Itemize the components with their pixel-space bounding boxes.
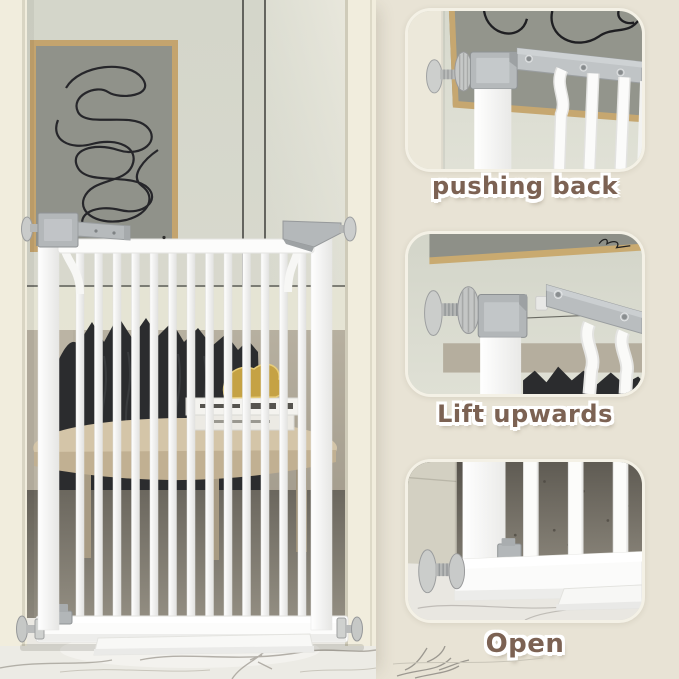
gate-post (480, 337, 521, 394)
panel2-couch (443, 343, 642, 372)
couch-back-strip (27, 287, 345, 332)
latch-clip (536, 296, 548, 310)
floor-ramp-strip (94, 634, 314, 655)
panel-label-lift-upwards: Lift upwards (405, 401, 645, 427)
wall-speck (162, 236, 165, 239)
panel1-art (408, 11, 642, 169)
right-wall-trim (345, 0, 376, 650)
detail-panel-pushing-back (405, 8, 645, 172)
gate-top-rail (58, 239, 314, 253)
marble-branch-veins (393, 646, 543, 679)
gate-post (474, 89, 511, 169)
left-door-frame (0, 0, 34, 650)
detail-panel-open (405, 459, 645, 623)
wall-mount-disc (427, 60, 443, 93)
panel3-art (408, 462, 642, 620)
room-scene-art (0, 0, 376, 679)
room-scene (0, 0, 376, 679)
product-image-root: pushing back (0, 0, 679, 679)
panel2-art (408, 234, 642, 394)
panel-label-pushing-back: pushing back (405, 173, 645, 199)
gate-post-right (311, 234, 332, 630)
top-wall-spindle-right (344, 217, 356, 241)
floor-ramp-strip (556, 585, 642, 610)
wall-rail-line (27, 285, 345, 287)
gate-post-left (38, 234, 59, 630)
detail-panel-lift-upwards (405, 231, 645, 397)
panel3-wall-strip (408, 462, 463, 565)
wall-mount-disc (425, 291, 443, 336)
bottom-latch-cap (58, 604, 68, 612)
